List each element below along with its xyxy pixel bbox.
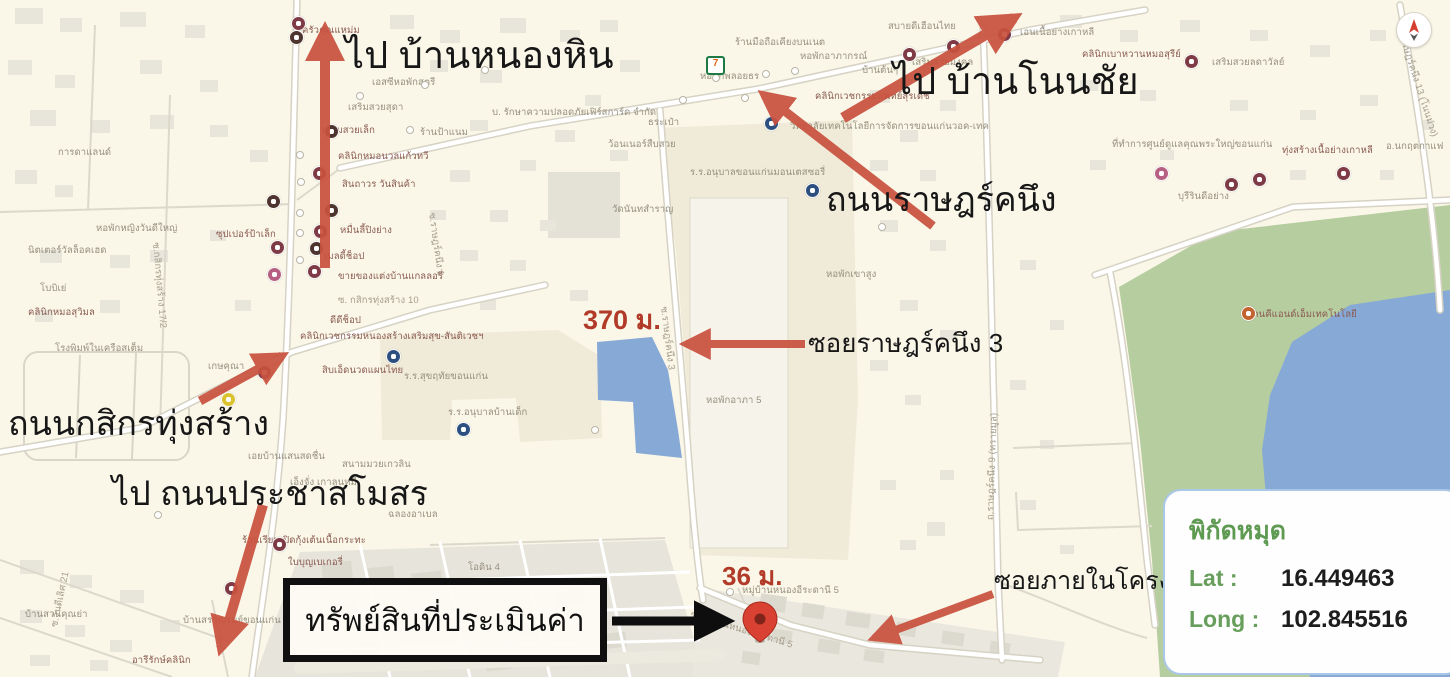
annotation-36m: 36 ม. — [722, 562, 783, 591]
annotation-soi-3: ซอยราษฎร์คนึง 3 — [808, 329, 1003, 358]
coordinates-title: พิกัดหมุด — [1189, 511, 1450, 551]
compass-needle-icon — [1397, 13, 1431, 47]
pond — [597, 337, 682, 458]
property-annotation-label: ทรัพย์สินที่ประเมินค่า — [305, 595, 585, 645]
map-screenshot: การดาแลนด์หอพักหญิงวันดีใหญ่ครัวคุณแหม่ม… — [0, 0, 1450, 677]
property-annotation-box: ทรัพย์สินที่ประเมินค่า — [283, 578, 607, 662]
annotation-370m: 370 ม. — [583, 306, 661, 336]
long-value: 102.845516 — [1281, 606, 1408, 634]
lat-label: Lat : — [1189, 565, 1281, 592]
school-area — [380, 330, 602, 442]
annotation-kasikorn: ถนนกสิกรทุ่งสร้าง — [8, 406, 269, 443]
annotation-to-non-chai: ไป บ้านโนนชัย — [893, 62, 1139, 104]
annotation-ratchakhanueng: ถนนราษฎร์คนึง — [826, 182, 1057, 219]
compass-button[interactable] — [1396, 12, 1432, 48]
coordinates-box: พิกัดหมุด Lat : 16.449463 Long : 102.845… — [1163, 489, 1450, 675]
annotation-to-nong-hin: ไป บ้านหนองหิน — [345, 36, 614, 78]
annotation-to-pracha: ไป ถนนประชาสโมสร — [112, 476, 428, 513]
lat-value: 16.449463 — [1281, 565, 1394, 593]
long-label: Long : — [1189, 606, 1281, 633]
